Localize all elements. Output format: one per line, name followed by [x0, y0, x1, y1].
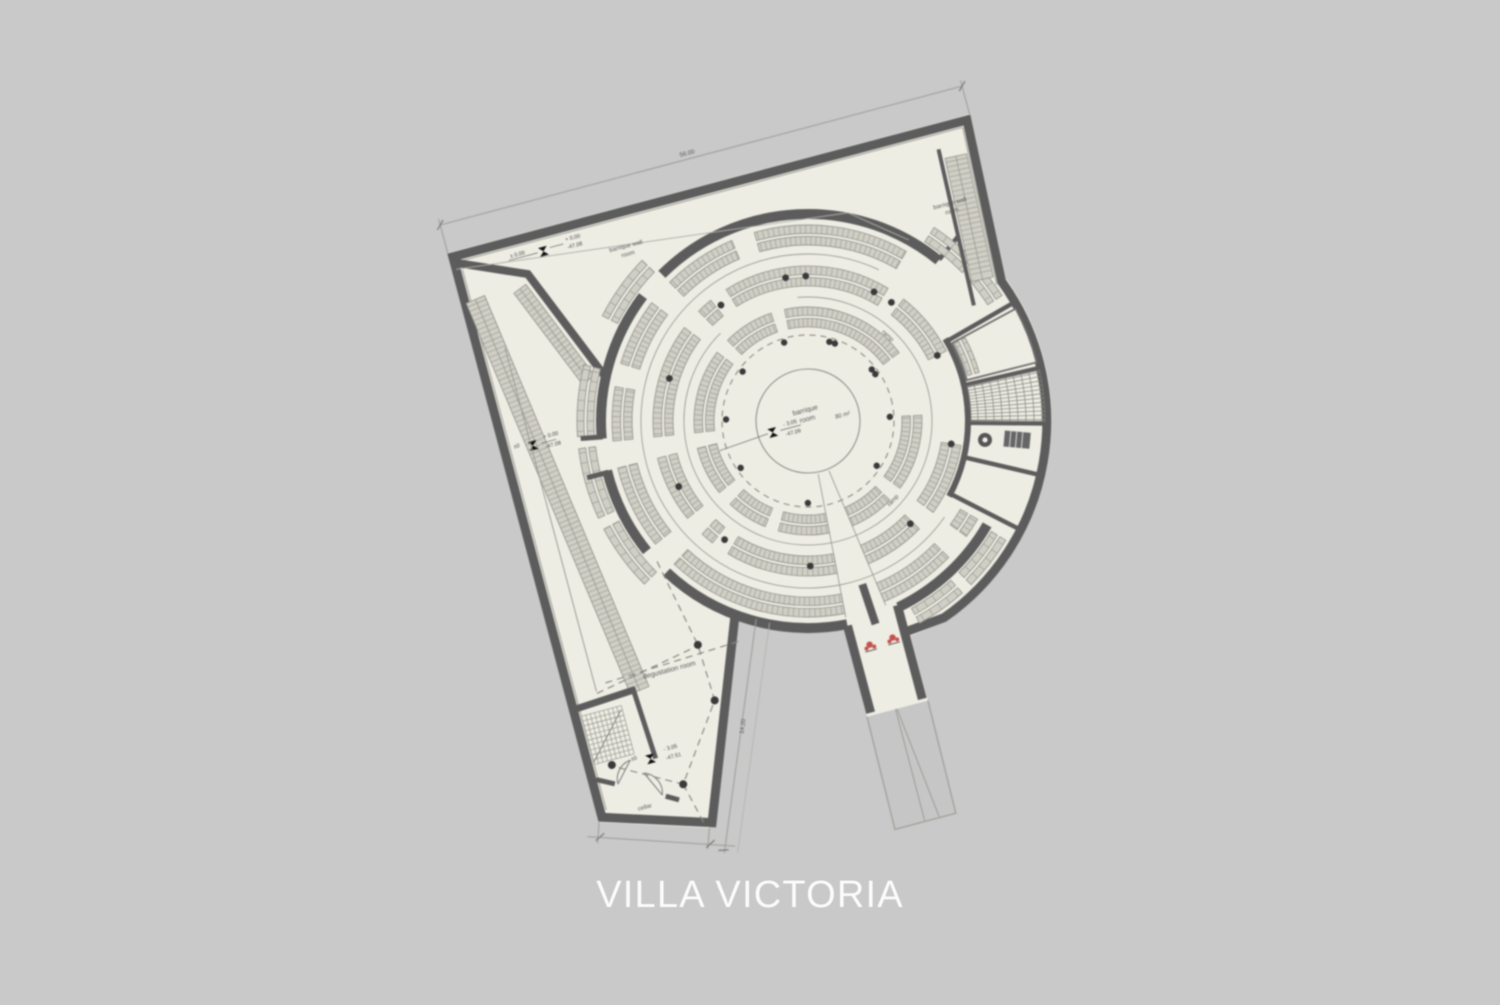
svg-text:14.20: 14.20: [739, 718, 747, 734]
